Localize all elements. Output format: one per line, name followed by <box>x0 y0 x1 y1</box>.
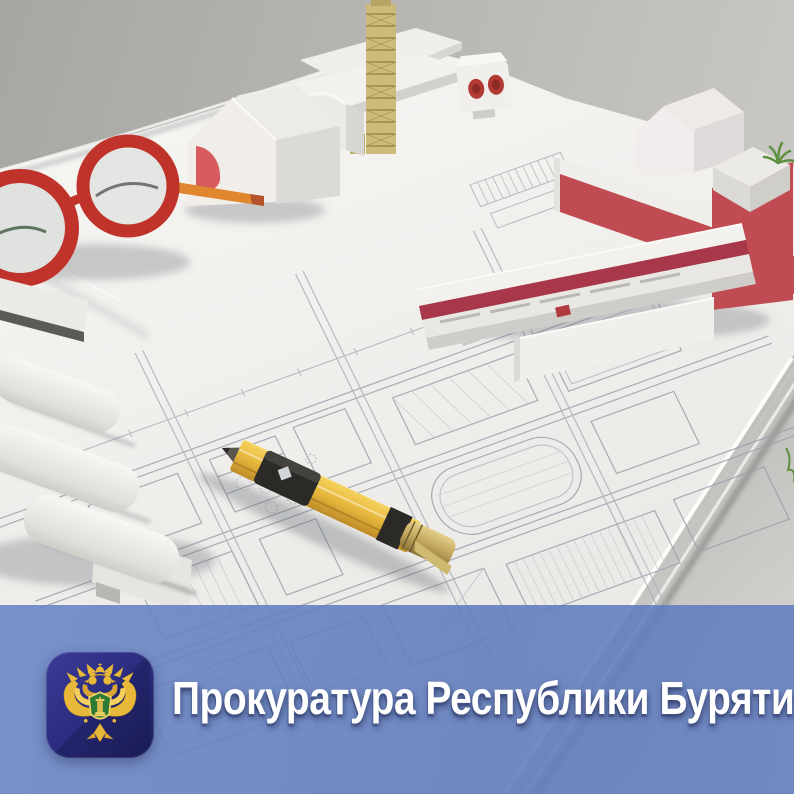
poster: Прокуратура Республики Бурятия <box>0 0 794 794</box>
banner: Прокуратура Республики Бурятия <box>0 605 794 794</box>
prosecutor-emblem-icon <box>46 652 154 758</box>
double-headed-eagle-icon <box>46 652 154 758</box>
banner-title: Прокуратура Республики Бурятия <box>172 674 794 722</box>
